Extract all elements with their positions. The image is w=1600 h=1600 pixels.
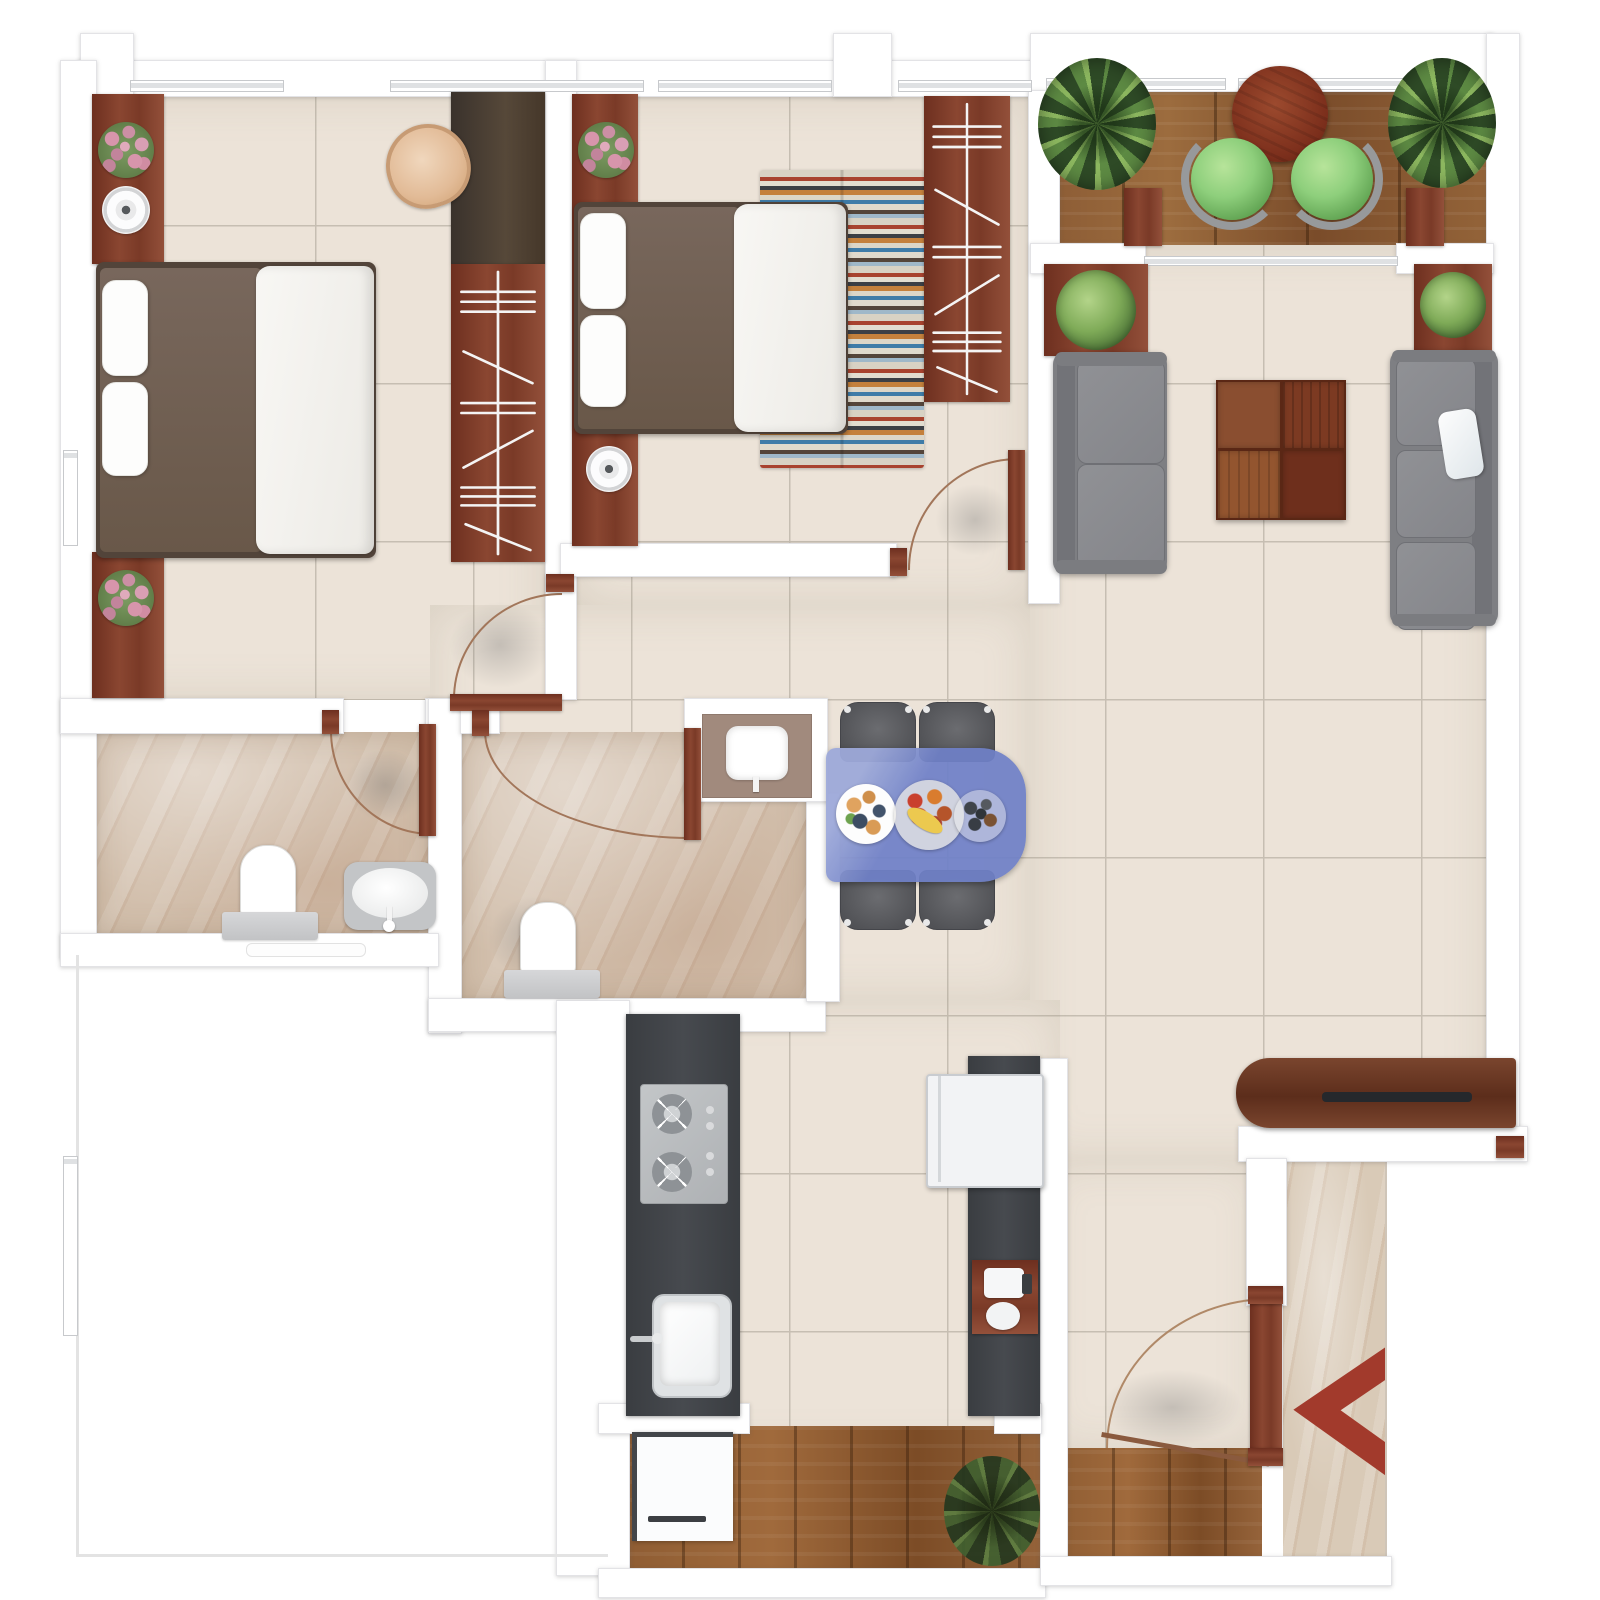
sofa-armrest [1392,350,1496,362]
planter-box [1406,188,1444,246]
window-bedroom1-a [130,80,284,92]
flower-pot-icon [98,122,154,178]
speaker-icon [586,446,632,492]
bed2-pillow [580,315,626,407]
wall-bath1-north-a [60,698,344,734]
floor-plan [0,0,1600,1600]
coffee-table-quadrant [1283,382,1344,448]
entrance-corridor-floor [1283,1156,1387,1562]
balcony-plant [1388,58,1496,188]
foyer-wood-floor [1056,1448,1262,1562]
refrigerator-door-line [938,1076,941,1182]
planter-plant-icon [1420,272,1486,338]
toilet-tank [222,912,318,940]
kitchen-faucet-icon [652,1333,663,1344]
faucet-icon [753,776,759,792]
window-left-wall-b [63,1156,78,1336]
plot-edge-bottom [76,1554,608,1557]
coffee-table-quadrant [1218,382,1280,448]
bed2-door-stop [890,548,907,576]
entry-arrow-icon [1283,1156,1385,1562]
bed1-console-top [92,94,164,264]
bath2-door-stop [472,710,489,736]
nook-washbasin [726,726,788,780]
wall-stub-mid [833,33,892,97]
window-left-wall-a [63,450,78,546]
wall-bedroom2-south [560,543,897,577]
balcony-chair [1191,138,1273,220]
hanger-rail-icon [924,96,1010,402]
bath2-door-leaf [684,728,701,840]
bed1-pillow [102,280,148,376]
hob-knob [706,1152,714,1160]
sofa-armrest [1392,614,1496,626]
wall-corridor-left [1246,1158,1287,1306]
hob-knob [706,1168,714,1176]
bed1-duvet [256,266,374,554]
toilet-tank [504,970,600,998]
bath1-door-leaf [419,724,436,836]
entry-door-frame-block [1248,1448,1283,1466]
washing-machine [632,1432,733,1541]
sofa-armrest [1055,352,1167,366]
bath1-door-stop [322,710,339,734]
entry-door-frame-block [1248,1286,1283,1304]
wall-kitchen-west [556,1000,630,1576]
bed2-duvet [734,204,846,432]
planter-plant-icon [1056,270,1136,350]
toilet-seat [520,902,576,976]
bed2-door-leaf [1008,450,1025,570]
balcony-chair [1291,138,1373,220]
wall-foyer-bottom [1040,1556,1392,1586]
utility-plant [944,1456,1040,1566]
wall-under-console [1238,1126,1528,1162]
kitchen-sink-basin [660,1302,720,1386]
snack-plate [954,790,1006,842]
refrigerator [926,1074,1044,1188]
balcony-plant [1038,58,1156,190]
bed1-door-leaf [450,694,562,711]
sofa-armrest [1055,560,1167,574]
window-bedroom2-b [898,80,1032,92]
tv-console-slot [1322,1092,1472,1102]
wall-utility-bottom [598,1568,1046,1598]
coffee-machine [984,1268,1024,1298]
toilet-seat [240,845,296,919]
washing-machine-panel [648,1516,706,1522]
faucet-icon [383,920,395,932]
coffee-table-quadrant [1283,451,1344,518]
bed1-wardrobe [451,264,545,562]
coffee-table [1216,380,1346,520]
burner-icon [652,1094,692,1134]
hob-knob [706,1122,714,1130]
window-bedroom2-a [658,80,832,92]
bed1-pillow [102,382,148,476]
flower-pot-icon [98,570,154,626]
bath1-shelf [246,943,366,957]
balcony-opening-sill [1144,256,1398,266]
hob-knob [706,1106,714,1114]
sofa-cushion [1077,464,1165,568]
planter-box [1124,188,1162,246]
sofa-two-seat-back [1057,358,1075,568]
hanger-rail-icon [451,264,545,562]
window-bedroom1-b [390,80,644,92]
console-side-block [1496,1136,1524,1158]
wall-kitchen-east [1040,1058,1068,1576]
bed1-door-stop [546,574,574,592]
entry-door-leaf [1250,1302,1282,1448]
coffee-machine [986,1302,1020,1330]
coffee-table-quadrant [1218,451,1280,518]
bed2-pillow [580,213,626,309]
bed2-wardrobe [924,96,1010,402]
fruit-plate [836,784,896,844]
speaker-icon [102,186,150,234]
coffee-machine-slot [1022,1274,1032,1294]
flower-pot-icon [578,122,634,178]
burner-icon [652,1152,692,1192]
sofa-cushion [1077,360,1165,464]
